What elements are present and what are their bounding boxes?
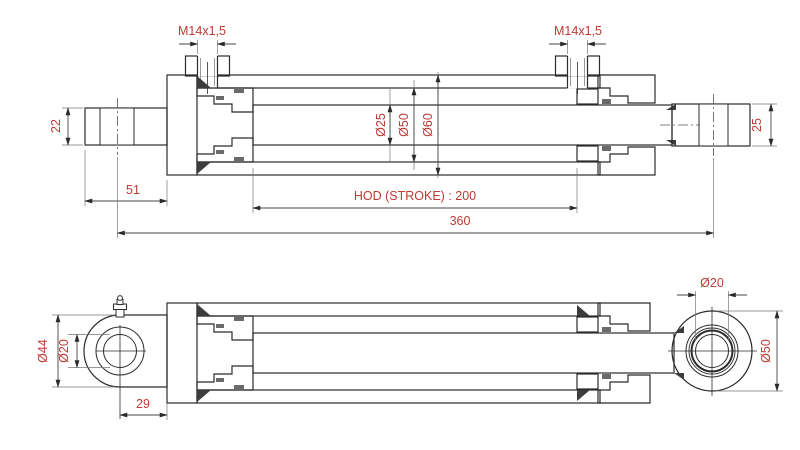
cap-eye xyxy=(84,315,167,419)
dim-overall-length: 360 xyxy=(450,215,471,228)
dim-stroke: HOD (STROKE) : 200 xyxy=(354,190,476,203)
dim-left-eye-width: 22 xyxy=(50,119,63,133)
side-section-view xyxy=(62,40,777,238)
dim-right-eye-outer: Ø50 xyxy=(760,339,773,363)
dim-left-eye-pin: Ø20 xyxy=(58,339,71,363)
rod-gland-plan xyxy=(577,303,650,403)
piston-rod-plan xyxy=(253,333,674,373)
technical-drawing-canvas: M14x1,5 M14x1,5 22 25 Ø25 Ø50 Ø60 51 HOD… xyxy=(0,0,800,450)
grease-nipple xyxy=(114,296,127,317)
cylinder-drawing xyxy=(0,0,800,450)
rod-eye-side xyxy=(660,94,750,156)
dim-bore-diameter: Ø50 xyxy=(398,113,411,137)
cylinder-barrel-plan xyxy=(197,303,600,403)
piston xyxy=(197,88,253,162)
piston-plan xyxy=(197,316,253,390)
dim-left-eye-offset: 29 xyxy=(136,398,150,411)
dimension-eye-width-22 xyxy=(62,108,83,145)
rod-eye xyxy=(668,307,757,396)
dim-right-port-thread: M14x1,5 xyxy=(554,25,602,38)
dim-left-eye-outer: Ø44 xyxy=(37,339,50,363)
dim-rod-diameter: Ø25 xyxy=(375,113,388,137)
dim-tube-outer-diameter: Ø60 xyxy=(422,113,435,137)
cap-eye-side xyxy=(85,98,167,155)
end-cap xyxy=(167,75,197,175)
piston-rod xyxy=(253,105,672,145)
dim-left-port-thread: M14x1,5 xyxy=(178,25,226,38)
dim-right-eye-pin: Ø20 xyxy=(700,277,724,290)
end-cap-plan xyxy=(167,303,197,403)
dimension-51 xyxy=(85,150,167,206)
rod-gland xyxy=(577,75,655,175)
plan-view xyxy=(52,291,783,420)
dimension-left-port xyxy=(179,40,236,54)
dimension-right-port xyxy=(549,40,606,54)
dim-right-eye-width: 25 xyxy=(751,118,764,132)
dim-left-eye-to-tube: 51 xyxy=(126,184,140,197)
